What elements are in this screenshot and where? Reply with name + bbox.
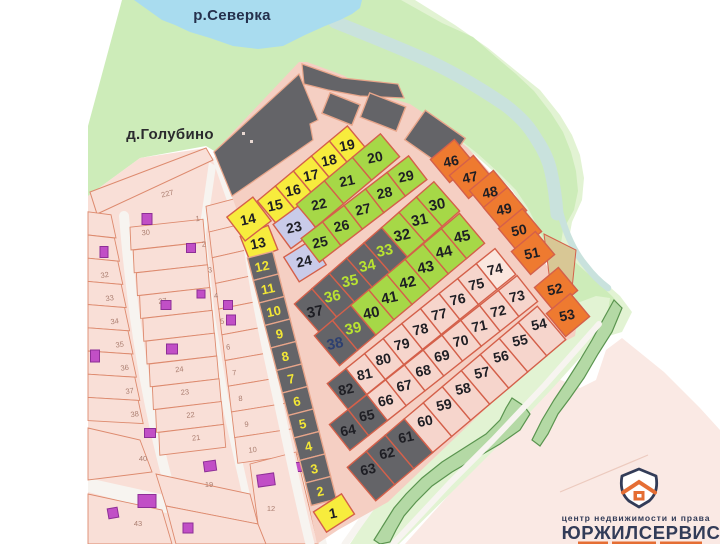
svg-text:30: 30 bbox=[427, 195, 447, 215]
svg-text:37: 37 bbox=[125, 386, 135, 396]
svg-text:31: 31 bbox=[410, 210, 430, 230]
svg-text:41: 41 bbox=[380, 288, 400, 308]
svg-text:р.Северка: р.Северка bbox=[193, 7, 271, 24]
svg-text:32: 32 bbox=[392, 226, 412, 246]
svg-text:22: 22 bbox=[186, 410, 195, 420]
svg-text:ЮРЖИЛСЕРВИС: ЮРЖИЛСЕРВИС bbox=[562, 522, 720, 543]
svg-text:32: 32 bbox=[100, 270, 110, 280]
svg-text:37: 37 bbox=[305, 302, 325, 322]
svg-text:35: 35 bbox=[340, 271, 360, 291]
svg-text:30: 30 bbox=[141, 228, 150, 238]
svg-text:10: 10 bbox=[265, 302, 282, 320]
svg-text:38: 38 bbox=[130, 409, 140, 419]
svg-text:21: 21 bbox=[192, 433, 201, 443]
svg-text:36: 36 bbox=[120, 363, 130, 373]
svg-text:33: 33 bbox=[105, 293, 115, 303]
svg-text:34: 34 bbox=[110, 316, 120, 326]
svg-text:д.Голубино: д.Голубино bbox=[126, 126, 214, 143]
svg-text:42: 42 bbox=[398, 273, 418, 293]
svg-text:35: 35 bbox=[115, 339, 125, 349]
svg-text:33: 33 bbox=[375, 241, 395, 261]
svg-text:45: 45 bbox=[452, 227, 472, 247]
svg-text:36: 36 bbox=[323, 287, 343, 307]
svg-text:10: 10 bbox=[248, 445, 257, 455]
svg-text:19: 19 bbox=[205, 480, 213, 489]
svg-text:12: 12 bbox=[253, 257, 270, 275]
svg-text:40: 40 bbox=[139, 454, 147, 463]
svg-text:40: 40 bbox=[361, 303, 381, 323]
svg-text:23: 23 bbox=[180, 387, 189, 397]
svg-text:43: 43 bbox=[134, 519, 142, 528]
svg-text:24: 24 bbox=[175, 364, 184, 374]
svg-text:43: 43 bbox=[416, 258, 436, 278]
svg-text:39: 39 bbox=[343, 319, 363, 339]
svg-text:12: 12 bbox=[267, 504, 275, 513]
svg-text:38: 38 bbox=[325, 334, 345, 354]
